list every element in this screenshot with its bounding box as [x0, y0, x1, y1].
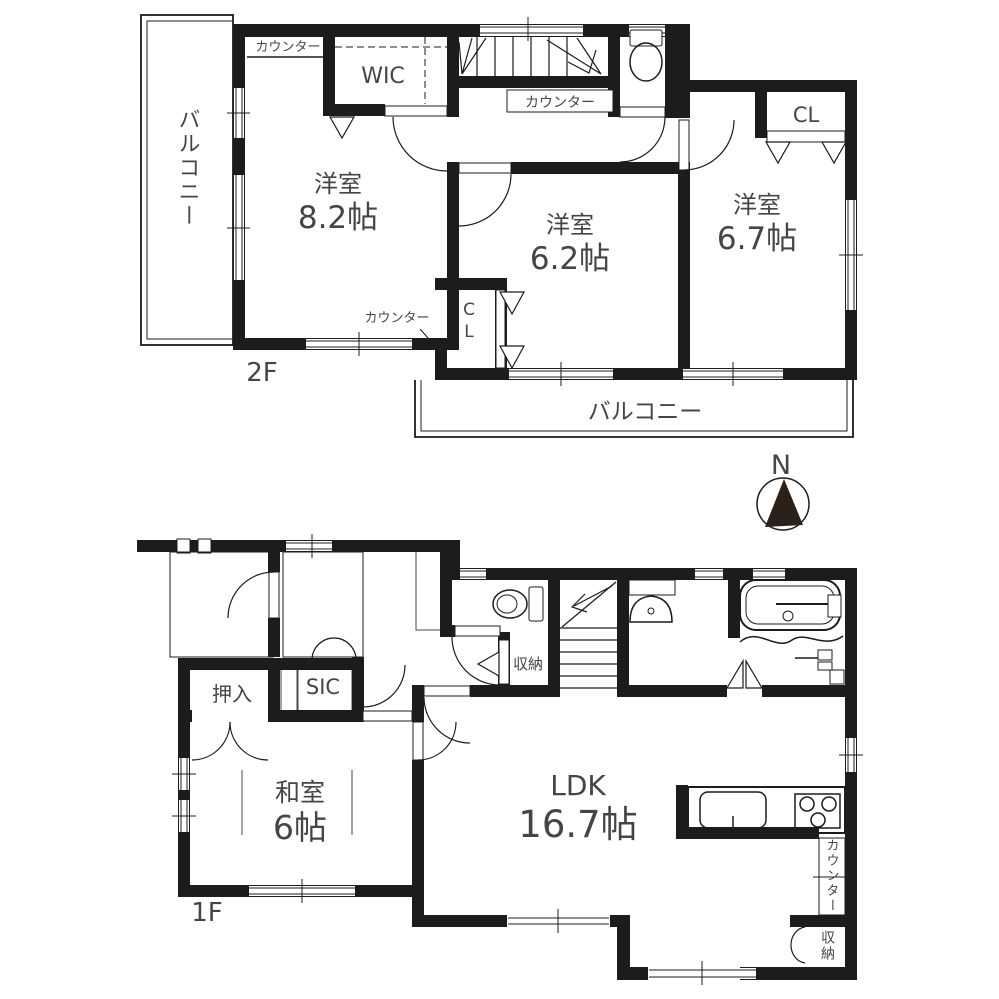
storage-hall: 収納: [478, 640, 543, 684]
compass-needle-icon: [765, 479, 803, 527]
balcony-rear-label: バルコニー: [588, 399, 703, 425]
closet-62-label: CL: [459, 300, 479, 344]
laundry-fixture: [795, 650, 844, 684]
washbasin: [629, 580, 675, 622]
counter-stairs-label: カウンター: [525, 95, 595, 111]
balcony-rear: バルコニー: [415, 380, 853, 437]
bedroom3-name: 洋室: [733, 191, 781, 219]
compass: N: [757, 450, 809, 530]
closet-62: CL: [459, 290, 524, 368]
sic-label: SIC: [306, 675, 340, 699]
storage-kitchen-label: 収納: [819, 930, 835, 962]
wic-label: WIC: [361, 64, 405, 89]
sic-closet: SIC: [281, 638, 356, 717]
floor-plan-svg: バルコニー: [0, 0, 999, 999]
stove: [795, 794, 840, 828]
floor2-label: 2F: [246, 358, 278, 388]
oshiire-label: 押入: [212, 682, 252, 706]
washitsu-name: 和室: [275, 778, 325, 807]
counter-stairs-2f: カウンター: [507, 90, 613, 112]
floor-plan: バルコニー: [0, 0, 999, 999]
bedroom2-size: 6.2帖: [530, 241, 610, 277]
counter-top-2f: カウンター: [247, 40, 329, 57]
closet-67-label: CL: [793, 103, 820, 127]
wic-closet: WIC: [330, 37, 447, 138]
kitchen-counter: [688, 787, 845, 833]
bedroom3-size: 6.7帖: [717, 221, 797, 257]
ldk-name: LDK: [550, 769, 606, 802]
closet-67: CL: [766, 103, 846, 163]
washitsu-size: 6帖: [273, 808, 327, 847]
counter-kitchen-label: カウンター: [824, 839, 839, 914]
floor-1f: SIC 押入 収納: [137, 534, 863, 985]
bedroom1-size: 8.2帖: [298, 200, 378, 236]
bathtub: [740, 580, 843, 643]
oshiire-closet: 押入: [192, 682, 268, 760]
staircase-2f: [459, 37, 601, 76]
entrance-porch: [170, 552, 363, 657]
storage-hall-label: 収納: [513, 655, 543, 673]
counter-bottom-label: カウンター: [364, 311, 429, 326]
bedroom2-name: 洋室: [546, 211, 594, 239]
counter-kitchen: カウンター: [813, 838, 851, 915]
toilet-2f: [630, 30, 662, 81]
balcony-left: バルコニー: [141, 15, 233, 345]
washroom-door: [727, 661, 762, 688]
balcony-left-label: バルコニー: [175, 108, 200, 228]
floor1-label: 1F: [191, 898, 223, 928]
ldk-size: 16.7帖: [518, 803, 637, 846]
floor-2f: バルコニー: [141, 15, 863, 437]
bedroom1-name: 洋室: [314, 170, 362, 198]
compass-label: N: [771, 450, 791, 481]
staircase-1f: [560, 582, 617, 688]
storage-kitchen: 収納: [791, 927, 835, 963]
counter-top-label: カウンター: [255, 40, 320, 55]
